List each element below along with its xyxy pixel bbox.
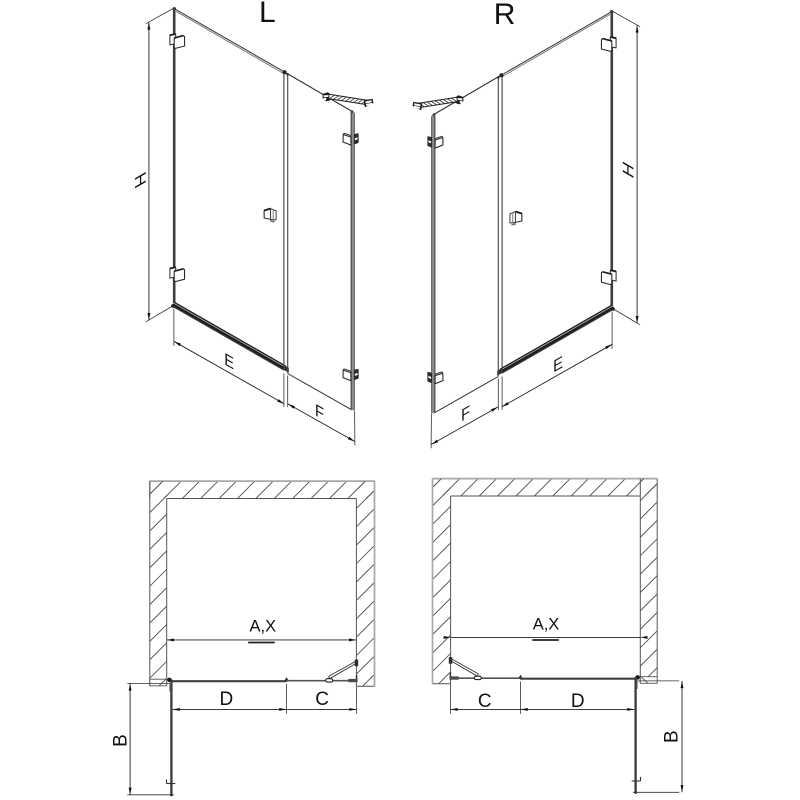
svg-text:A,X: A,X bbox=[249, 617, 276, 635]
svg-text:C: C bbox=[478, 691, 492, 712]
svg-text:D: D bbox=[571, 691, 585, 712]
svg-text:L: L bbox=[259, 0, 276, 29]
svg-text:R: R bbox=[494, 0, 516, 31]
svg-text:B: B bbox=[111, 734, 132, 747]
svg-text:A,X: A,X bbox=[533, 615, 560, 633]
svg-text:C: C bbox=[315, 689, 329, 710]
svg-text:B: B bbox=[662, 730, 683, 743]
svg-text:D: D bbox=[220, 689, 234, 710]
